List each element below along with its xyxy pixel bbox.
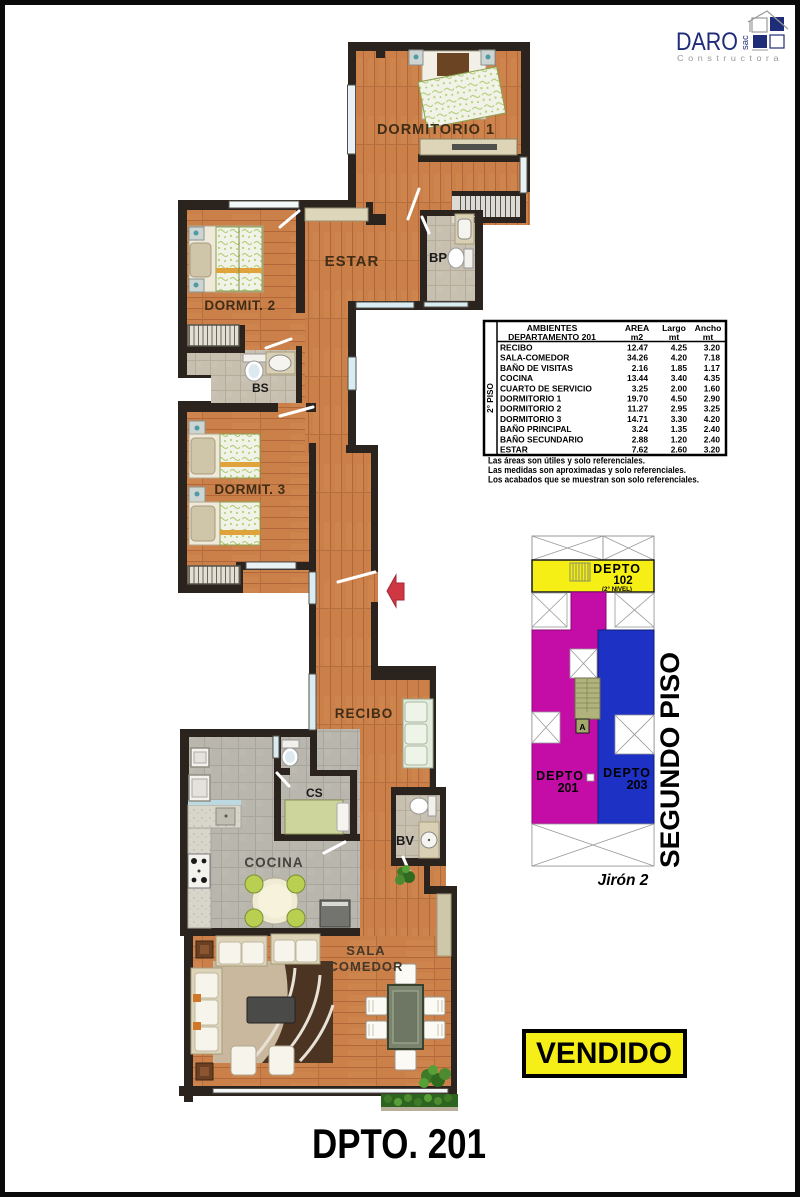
svg-text:RECIBO: RECIBO <box>335 706 394 721</box>
svg-text:RECIBO: RECIBO <box>500 343 533 353</box>
svg-text:BP: BP <box>429 250 447 265</box>
svg-text:COMEDOR: COMEDOR <box>329 959 404 974</box>
svg-text:DORMITORIO 3: DORMITORIO 3 <box>500 414 562 424</box>
svg-text:Los acabados que se muestran s: Los acabados que se muestran son solo re… <box>488 475 699 485</box>
svg-text:CS: CS <box>306 786 323 800</box>
svg-text:7.18: 7.18 <box>704 353 721 363</box>
svg-text:BV: BV <box>396 833 414 848</box>
svg-text:sac: sac <box>740 35 751 50</box>
svg-text:COCINA: COCINA <box>500 373 533 383</box>
svg-text:mt: mt <box>669 332 680 342</box>
svg-text:2.60: 2.60 <box>671 445 688 455</box>
svg-text:Jirón 2: Jirón 2 <box>598 872 649 889</box>
svg-text:201: 201 <box>558 781 579 795</box>
svg-text:2.88: 2.88 <box>632 434 649 444</box>
svg-text:SALA-COMEDOR: SALA-COMEDOR <box>500 353 569 363</box>
svg-text:12.47: 12.47 <box>627 343 648 353</box>
svg-text:1.17: 1.17 <box>704 363 721 373</box>
svg-text:CUARTO DE SERVICIO: CUARTO DE SERVICIO <box>500 383 592 393</box>
svg-text:DARO: DARO <box>676 28 738 56</box>
svg-text:4.25: 4.25 <box>671 343 688 353</box>
svg-text:11.27: 11.27 <box>628 404 649 414</box>
svg-text:BAÑO PRINCIPAL: BAÑO PRINCIPAL <box>500 424 572 434</box>
svg-text:1.60: 1.60 <box>704 383 721 393</box>
svg-text:3.40: 3.40 <box>671 373 688 383</box>
svg-text:DEPTO: DEPTO <box>593 562 641 576</box>
svg-text:14.71: 14.71 <box>627 414 648 424</box>
svg-text:ESTAR: ESTAR <box>500 445 528 455</box>
svg-text:7.62: 7.62 <box>632 445 649 455</box>
svg-text:BAÑO DE VISITAS: BAÑO DE VISITAS <box>500 363 573 373</box>
svg-text:m2: m2 <box>631 332 644 342</box>
svg-text:DORMITORIO 1: DORMITORIO 1 <box>500 394 562 404</box>
svg-text:4.20: 4.20 <box>671 353 688 363</box>
svg-text:DEPARTAMENTO 201: DEPARTAMENTO 201 <box>508 332 596 342</box>
svg-text:19.70: 19.70 <box>627 394 648 404</box>
svg-text:SALA: SALA <box>346 943 385 958</box>
svg-text:34.26: 34.26 <box>627 353 648 363</box>
svg-text:DORMIT. 3: DORMIT. 3 <box>214 482 285 497</box>
svg-text:2.90: 2.90 <box>704 394 721 404</box>
svg-text:3.25: 3.25 <box>632 383 649 393</box>
svg-text:2.00: 2.00 <box>671 383 688 393</box>
svg-text:ESTAR: ESTAR <box>325 253 380 270</box>
svg-text:Las áreas son útiles y solo re: Las áreas son útiles y solo referenciale… <box>488 456 645 466</box>
svg-text:1.20: 1.20 <box>671 434 688 444</box>
svg-text:3.25: 3.25 <box>704 404 721 414</box>
svg-text:DPTO. 201: DPTO. 201 <box>312 1120 486 1167</box>
svg-text:3.20: 3.20 <box>704 445 721 455</box>
svg-text:A: A <box>579 722 585 732</box>
svg-text:DORMITORIO 2: DORMITORIO 2 <box>500 404 562 414</box>
svg-text:2° PISO: 2° PISO <box>486 383 495 413</box>
svg-text:13.44: 13.44 <box>627 373 648 383</box>
svg-text:Constructora: Constructora <box>677 53 783 63</box>
svg-text:3.20: 3.20 <box>704 343 721 353</box>
svg-text:VENDIDO: VENDIDO <box>536 1037 672 1070</box>
svg-text:3.24: 3.24 <box>632 424 649 434</box>
svg-text:4.50: 4.50 <box>671 394 688 404</box>
svg-text:COCINA: COCINA <box>244 855 303 870</box>
svg-text:mt: mt <box>703 332 714 342</box>
svg-text:2.40: 2.40 <box>704 424 721 434</box>
svg-text:1.35: 1.35 <box>671 424 688 434</box>
svg-text:(2° NIVEL): (2° NIVEL) <box>602 586 632 593</box>
svg-text:4.20: 4.20 <box>704 414 721 424</box>
svg-text:2.16: 2.16 <box>632 363 649 373</box>
svg-text:BAÑO SECUNDARIO: BAÑO SECUNDARIO <box>500 434 584 444</box>
svg-text:2.95: 2.95 <box>671 404 688 414</box>
svg-text:1.85: 1.85 <box>671 363 688 373</box>
svg-text:Las medidas son aproximadas y: Las medidas son aproximadas y solo refer… <box>488 465 686 475</box>
svg-text:3.30: 3.30 <box>671 414 688 424</box>
svg-text:203: 203 <box>627 778 648 792</box>
svg-text:4.35: 4.35 <box>704 373 721 383</box>
svg-text:BS: BS <box>252 381 269 395</box>
svg-text:2.40: 2.40 <box>704 434 721 444</box>
svg-text:DORMITORIO 1: DORMITORIO 1 <box>377 122 495 138</box>
svg-text:SEGUNDO PISO: SEGUNDO PISO <box>655 652 685 868</box>
svg-text:DORMIT. 2: DORMIT. 2 <box>204 298 275 313</box>
